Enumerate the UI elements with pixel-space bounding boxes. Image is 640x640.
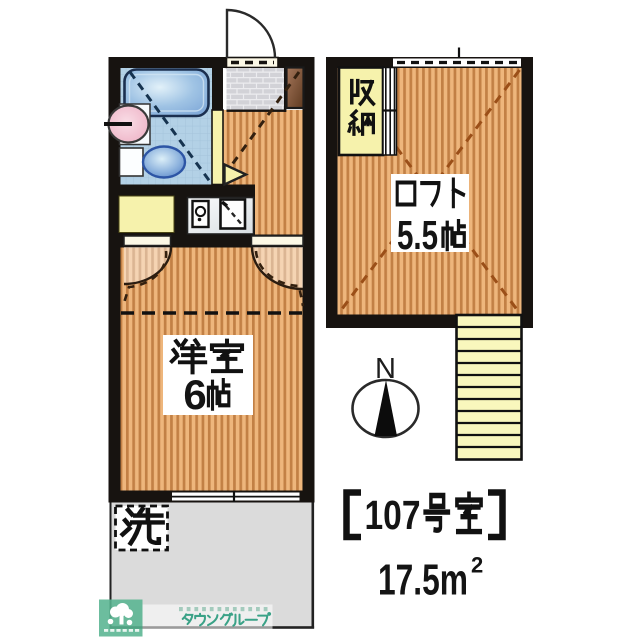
- svg-text:N: N: [375, 353, 396, 385]
- svg-text:107: 107: [365, 492, 421, 538]
- svg-text:2: 2: [471, 553, 483, 578]
- svg-text:17.5m: 17.5m: [378, 556, 468, 605]
- svg-text:5.5: 5.5: [397, 212, 438, 258]
- svg-text:6: 6: [183, 371, 206, 418]
